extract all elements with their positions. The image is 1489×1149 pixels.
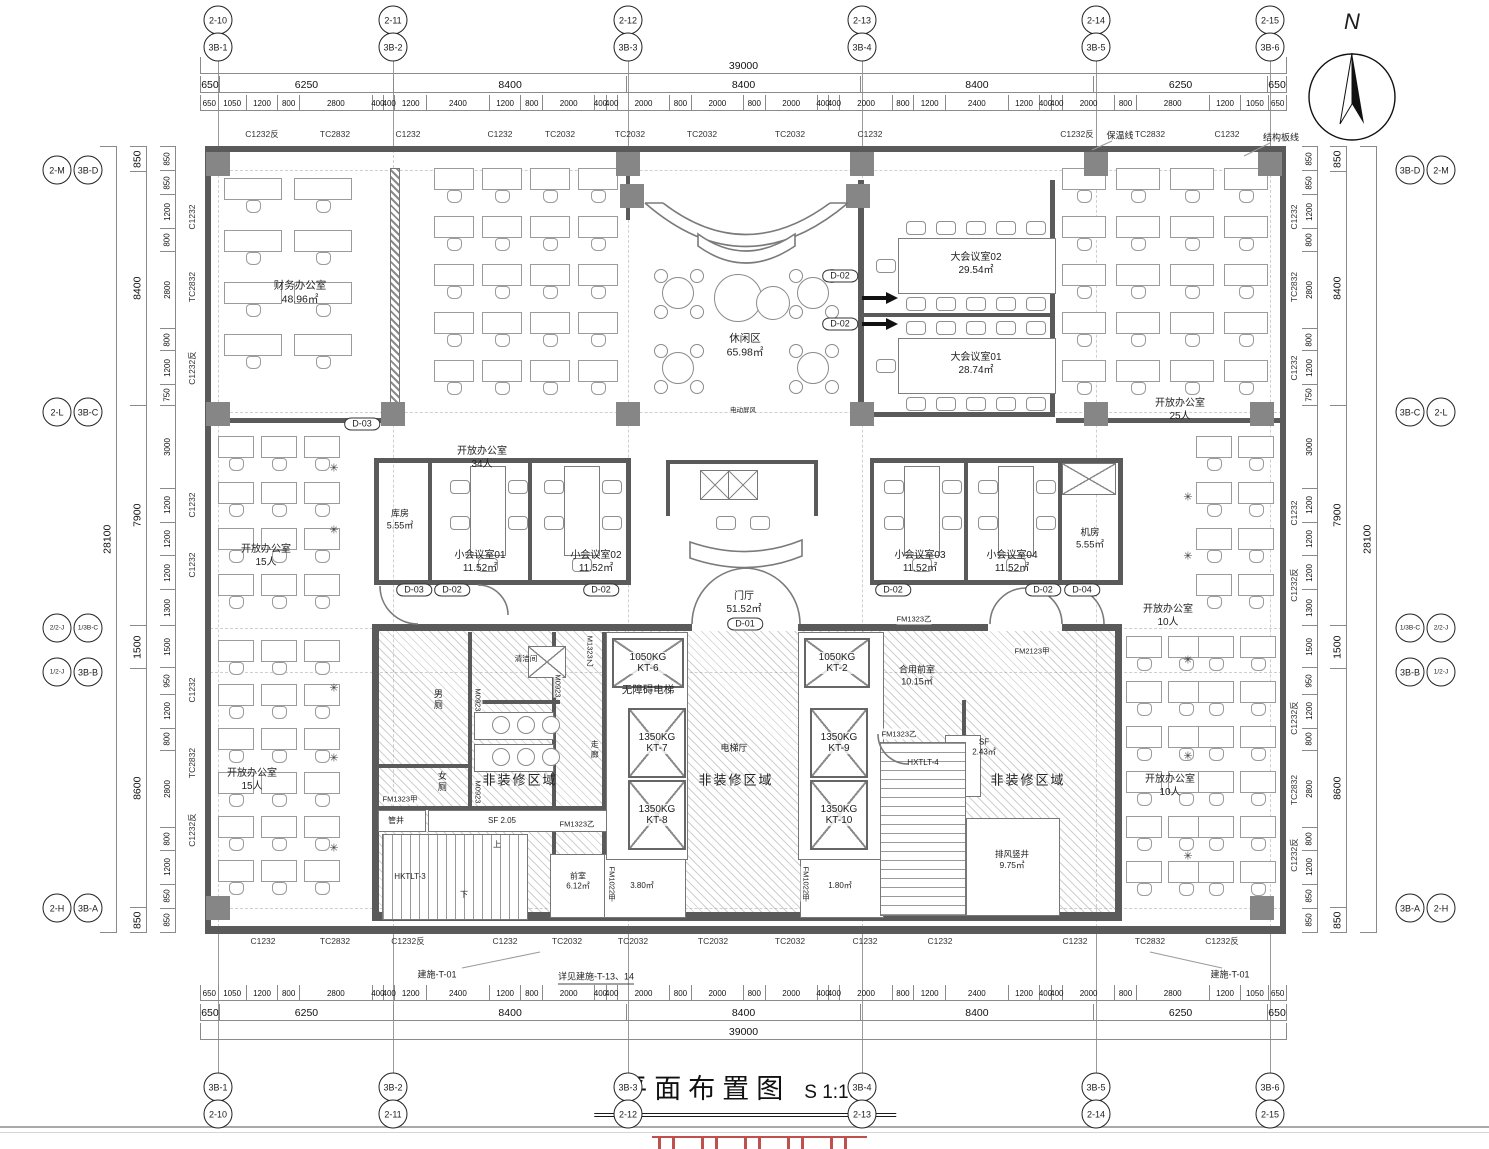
dimension-value: 2800 <box>1306 281 1314 299</box>
annotation-js-left: 建施-T-01 <box>417 968 456 981</box>
axis-bubble: 3B-2 <box>379 33 408 62</box>
chair <box>315 458 330 471</box>
wash-basin <box>492 716 510 734</box>
dimension-segment: 2800 <box>1137 95 1210 110</box>
axis-bubble: 2/2-J <box>43 614 72 643</box>
dimension-segment: 6250 <box>220 76 394 92</box>
dim-left-overall: 28100 <box>100 146 117 933</box>
dimension-value: 800 <box>282 100 295 110</box>
chair <box>1137 703 1152 716</box>
desk <box>1238 528 1274 550</box>
elevator-cell: 1350KGKT-9 <box>810 708 868 778</box>
chair <box>447 382 462 395</box>
window-type-label: C1232 <box>187 552 197 577</box>
axis-bubble: 3B-B <box>1396 658 1425 687</box>
axis-bubble: 2-M <box>1427 156 1456 185</box>
axis-bubble: 1/2-J <box>43 658 72 687</box>
elevator-cell: 1050KGKT-2 <box>804 638 870 688</box>
room-name: 大会议室02 <box>950 252 1001 263</box>
dimension-segment: 1200 <box>160 556 175 590</box>
desk <box>1238 574 1274 596</box>
door-tag-d02: D-02 <box>434 584 470 597</box>
desk <box>1116 216 1160 238</box>
room-capacity: 25人 <box>1169 411 1190 422</box>
dimension-value: 800 <box>896 100 909 110</box>
plant-icon: ✳ <box>1183 850 1192 863</box>
desk <box>482 312 522 334</box>
chair <box>495 238 510 251</box>
structural-column <box>1084 152 1108 176</box>
room-label-shaft-b: 1.80㎡ <box>828 881 852 891</box>
meeting-table <box>904 466 940 556</box>
dimension-value: 750 <box>163 389 171 402</box>
dimension-value: 39000 <box>729 61 758 74</box>
chair <box>1137 883 1152 896</box>
dimension-segment: 800 <box>670 95 692 110</box>
chair <box>1036 516 1056 530</box>
dimension-segment: 650 <box>201 985 219 1000</box>
chair <box>315 596 330 609</box>
door-tag-m1323: M1323乙 <box>585 636 596 666</box>
window-type-label: TC2032 <box>775 129 805 139</box>
window-type-label: C1232 <box>1214 129 1239 139</box>
chair <box>942 480 962 494</box>
desk <box>261 436 297 458</box>
axis-bubble: 3B-5 <box>1082 1073 1111 1102</box>
dimension-value: 6250 <box>1169 80 1192 93</box>
desk <box>1196 436 1232 458</box>
dimension-segment: 7900 <box>1330 406 1346 626</box>
dimension-value: 950 <box>163 674 171 687</box>
window-type-label: TC2832 <box>320 129 350 139</box>
axis-bubble: 2-H <box>43 894 72 923</box>
desk <box>294 178 352 200</box>
dimension-segment: 850 <box>160 909 175 933</box>
axis-bubble: 3B-3 <box>614 1073 643 1102</box>
window-type-label: TC2832 <box>320 936 350 946</box>
axis-bubble: 2-12 <box>614 6 643 35</box>
chair <box>229 838 244 851</box>
axis-bubble: 2-11 <box>379 1100 408 1129</box>
dimension-segment: 8400 <box>130 172 146 406</box>
desk <box>261 640 297 662</box>
window-type-label: C1232反 <box>186 813 198 847</box>
desk <box>530 264 570 286</box>
desk <box>224 178 282 200</box>
desk <box>304 772 340 794</box>
dimension-value: 800 <box>748 100 761 110</box>
room-label-storage: 库房5.55㎡ <box>387 508 414 531</box>
axis-bubble: 2-M <box>43 156 72 185</box>
sink-unit <box>728 470 758 500</box>
dimension-value: 800 <box>748 990 761 1000</box>
dimension-segment: 800 <box>670 985 692 1000</box>
structural-column <box>616 402 640 426</box>
chair <box>447 286 462 299</box>
elevator-cell: 1350KGKT-10 <box>810 780 868 850</box>
chair <box>1207 458 1222 471</box>
dimension-segment: 1200 <box>1302 489 1317 523</box>
elevator-label: 1350KGKT-9 <box>821 732 858 754</box>
dimension-segment: 800 <box>1302 729 1317 752</box>
window-type-label: TC2032 <box>552 936 582 946</box>
window-type-label: C1232 <box>1289 204 1299 229</box>
room-area: 29.54㎡ <box>958 265 993 276</box>
dimension-segment: 8400 <box>627 76 860 92</box>
wash-basin <box>542 716 560 734</box>
round-table <box>797 352 829 384</box>
chair <box>591 382 606 395</box>
dimension-value: 2800 <box>1306 780 1314 798</box>
desk <box>1198 726 1234 748</box>
desk <box>1126 636 1162 658</box>
dimension-segment: 850 <box>1302 171 1317 195</box>
dimension-segment: 850 <box>130 147 146 172</box>
chair <box>447 334 462 347</box>
window-type-label: C1232 <box>395 129 420 139</box>
dimension-value: 2000 <box>635 990 653 1000</box>
dimension-segment: 1200 <box>1302 556 1317 590</box>
axis-bubble: 3B-6 <box>1256 33 1285 62</box>
dimension-segment: 1200 <box>395 95 427 110</box>
chair <box>272 794 287 807</box>
chair <box>1179 883 1194 896</box>
chair <box>495 382 510 395</box>
wash-basin <box>517 748 535 766</box>
plant-icon: ✳ <box>329 842 338 855</box>
dimension-value: 800 <box>674 100 687 110</box>
dimension-segment: 750 <box>160 385 175 406</box>
chair <box>1026 321 1046 335</box>
room-label-shared-front: 合用前室10.15㎡ <box>899 664 935 687</box>
desk <box>261 816 297 838</box>
dimension-segment: 2000 <box>840 95 892 110</box>
dimension-segment: 1200 <box>1009 985 1041 1000</box>
room-capacity: 10人 <box>1157 617 1178 628</box>
dimension-value: 1200 <box>1015 100 1033 110</box>
dimension-value: 850 <box>1333 150 1344 168</box>
desk <box>261 860 297 882</box>
room-label-open10a: 开放办公室10人 <box>1143 603 1193 629</box>
dimension-segment: 1200 <box>1210 985 1242 1000</box>
desk <box>434 168 474 190</box>
door-tag-m0923: M0923 <box>474 689 483 712</box>
axis-bubble: 2/2-J <box>1427 614 1456 643</box>
room-label-small04: 小会议室0411.52㎡ <box>986 549 1037 575</box>
axis-bubble: 3B-1 <box>204 1073 233 1102</box>
fire-door-tag: FM1022甲 <box>801 866 812 901</box>
dimension-segment: 1200 <box>914 95 946 110</box>
dimension-value: 1200 <box>164 530 172 548</box>
dimension-value: 850 <box>1305 914 1313 927</box>
north-label: N <box>1344 9 1360 35</box>
dimension-value: 400 <box>605 100 618 110</box>
dimension-value: 28100 <box>103 525 114 554</box>
axis-bubble: 3B-A <box>74 894 103 923</box>
chair <box>1249 458 1264 471</box>
chair <box>591 238 606 251</box>
chair <box>1239 190 1254 203</box>
window-type-label: C1232 <box>487 129 512 139</box>
desk <box>1116 360 1160 382</box>
window-type-label: TC2832 <box>1289 272 1299 302</box>
room-name: 开放办公室 <box>1155 398 1205 409</box>
dim-top-overall: 39000 <box>200 57 1287 74</box>
desk <box>530 360 570 382</box>
room-label-corridor: 走廊 <box>589 740 599 760</box>
chair <box>591 286 606 299</box>
dimension-value: 1500 <box>1306 638 1314 656</box>
chair <box>942 516 962 530</box>
chair <box>1026 221 1046 235</box>
stair-label-right: HXTLT-4 <box>907 758 938 768</box>
desk <box>434 312 474 334</box>
room-name: 排风竖井 <box>995 849 1029 859</box>
chair <box>1131 238 1146 251</box>
desk <box>218 574 254 596</box>
window-type-label: C1232 <box>250 936 275 946</box>
dimension-value: 8600 <box>133 776 144 799</box>
structural-column <box>616 152 640 176</box>
meeting-table <box>998 466 1034 556</box>
chair <box>1131 286 1146 299</box>
room-area: 11.52㎡ <box>903 563 937 574</box>
dimension-value: 28100 <box>1363 525 1374 554</box>
window-type-label: TC2832 <box>1135 129 1165 139</box>
window-type-label: TC2032 <box>698 936 728 946</box>
desk <box>1224 360 1268 382</box>
desk <box>1240 771 1276 793</box>
dimension-value: 2400 <box>968 100 986 110</box>
desk <box>1196 528 1232 550</box>
desk <box>530 216 570 238</box>
room-label-women: 女厕 <box>435 771 447 793</box>
desk <box>304 860 340 882</box>
chair <box>315 882 330 895</box>
dimension-segment: 2000 <box>618 985 670 1000</box>
room-area: 11.52㎡ <box>463 563 497 574</box>
chair <box>654 305 668 319</box>
window-type-label: TC2032 <box>615 129 645 139</box>
dimension-segment: 2400 <box>946 95 1009 110</box>
elevator-cell: 1350KGKT-7 <box>628 708 686 778</box>
room-name: 前室 <box>570 872 586 881</box>
door-tag-d02: D-02 <box>875 584 911 597</box>
dimension-value: 8400 <box>133 276 144 299</box>
dimension-value: 400 <box>383 990 396 1000</box>
stair-label-left: HKTLT-3 <box>394 872 425 882</box>
dimension-value: 1050 <box>223 990 241 1000</box>
annotation-js-mid: 详见建施-T-13、14 <box>558 970 634 985</box>
dimension-value: 1200 <box>921 990 939 1000</box>
room-name: 开放办公室 <box>241 544 291 555</box>
axis-bubble: 3B-4 <box>848 1073 877 1102</box>
dim-left-minors: 8508501200800280080012007503000120012001… <box>160 146 176 933</box>
room-label-shaft-a: 3.80㎡ <box>630 881 654 891</box>
chair <box>690 380 704 394</box>
axis-bubble: 2-L <box>1427 398 1456 427</box>
dimension-segment: 8400 <box>627 1004 860 1020</box>
desk <box>1116 264 1160 286</box>
chair <box>1209 883 1224 896</box>
dimension-value: 800 <box>163 833 171 846</box>
dimension-segment: 1200 <box>247 985 279 1000</box>
chair <box>936 297 956 311</box>
chair <box>272 838 287 851</box>
dimension-segment: 2000 <box>692 95 744 110</box>
chair <box>1185 334 1200 347</box>
dimension-segment: 1200 <box>160 523 175 557</box>
room-area: 10.15㎡ <box>901 676 933 686</box>
desk <box>1198 816 1234 838</box>
desk <box>304 816 340 838</box>
dimension-segment: 1200 <box>1210 95 1242 110</box>
desk <box>1224 216 1268 238</box>
dimension-segment: 800 <box>521 95 543 110</box>
chair <box>1077 190 1092 203</box>
desk <box>218 640 254 662</box>
entrance-arrows <box>862 292 898 330</box>
decor <box>862 318 898 330</box>
axis-bubble: 3B-4 <box>848 33 877 62</box>
room-name: 休闲区 <box>729 332 761 344</box>
dimension-value: 1200 <box>164 702 172 720</box>
dimension-segment: 1500 <box>130 626 146 669</box>
window-type-label: C1232 <box>1289 355 1299 380</box>
chair <box>602 516 622 530</box>
sofa-circle <box>756 286 790 320</box>
door-tag-d01: D-01 <box>727 618 763 631</box>
dimension-value: 800 <box>525 100 538 110</box>
structural-column <box>206 896 230 920</box>
dimension-segment: 1200 <box>1302 195 1317 229</box>
dimension-value: 1200 <box>1306 496 1314 514</box>
chair <box>1026 297 1046 311</box>
room-label-pipe: 管井 <box>388 816 404 826</box>
room-name: 机房 <box>1080 528 1099 539</box>
desk <box>1198 636 1234 658</box>
dimension-value: 2800 <box>164 281 172 299</box>
cropped-red-stamp <box>652 1136 867 1149</box>
axis-bubble: 2-13 <box>848 1100 877 1129</box>
chair <box>1026 397 1046 411</box>
chair <box>450 480 470 494</box>
window-type-label: TC2032 <box>775 936 805 946</box>
chair <box>876 259 896 273</box>
desk <box>224 334 282 356</box>
window-type-label: TC2832 <box>187 272 197 302</box>
window-type-label: C1232 <box>927 936 952 946</box>
dimension-segment: 2800 <box>1137 985 1210 1000</box>
desk <box>261 684 297 706</box>
axis-bubble: 2-15 <box>1256 1100 1285 1129</box>
desk <box>218 728 254 750</box>
dimension-segment: 800 <box>278 985 300 1000</box>
chair <box>591 334 606 347</box>
room-area: 28.74㎡ <box>958 365 993 376</box>
dimension-value: 2000 <box>708 990 726 1000</box>
dimension-segment: 1500 <box>1302 626 1317 668</box>
chair <box>543 190 558 203</box>
chair <box>316 356 331 369</box>
structural-column <box>620 184 644 208</box>
chair <box>1239 286 1254 299</box>
chair <box>272 458 287 471</box>
dimension-value: 3000 <box>164 438 172 456</box>
dimension-value: 1300 <box>164 599 172 617</box>
chair <box>447 238 462 251</box>
door-tag-d02: D-02 <box>583 584 619 597</box>
room-label-open15a: 开放办公室15人 <box>241 543 291 569</box>
dimension-value: 1300 <box>1306 599 1314 617</box>
window-type-label: C1232反 <box>1205 935 1239 947</box>
chair <box>690 305 704 319</box>
chair <box>1207 504 1222 517</box>
fire-door-tag: FM1022甲 <box>607 866 618 901</box>
dimension-segment: 8400 <box>394 76 627 92</box>
dimension-value: 800 <box>1305 733 1313 746</box>
dimension-segment: 1200 <box>160 351 175 385</box>
wall <box>205 146 1286 152</box>
elevator-cell: 1050KGKT-6 <box>612 638 684 688</box>
dim-top-majors: 65062508400840084006250650 <box>200 76 1287 93</box>
room-name: 开放办公室 <box>1143 604 1193 615</box>
dimension-value: 1050 <box>1246 990 1264 1000</box>
annotation-structural-line: 结构板线 <box>1263 131 1299 144</box>
dimension-value: 1200 <box>164 564 172 582</box>
dimension-segment: 1050 <box>219 95 247 110</box>
chair <box>316 200 331 213</box>
chair <box>544 516 564 530</box>
dimension-segment: 800 <box>893 985 915 1000</box>
chair <box>1179 703 1194 716</box>
chair <box>315 794 330 807</box>
dimension-value: 2400 <box>449 990 467 1000</box>
chair <box>996 397 1016 411</box>
dimension-value: 8400 <box>498 1008 521 1021</box>
room-label-small01: 小会议室0111.52㎡ <box>454 549 505 575</box>
dimension-segment: 1200 <box>490 95 522 110</box>
dimension-segment: 2000 <box>840 985 892 1000</box>
dimension-value: 800 <box>163 733 171 746</box>
desk <box>218 436 254 458</box>
room-label-small03: 小会议室0311.52㎡ <box>894 549 945 575</box>
axis-bubble: 1/3B-C <box>1396 614 1425 643</box>
desk <box>1240 861 1276 883</box>
dimension-segment: 950 <box>1302 668 1317 695</box>
dimension-value: 2800 <box>327 100 345 110</box>
chair <box>906 221 926 235</box>
desk <box>261 728 297 750</box>
dimension-value: 8400 <box>965 80 988 93</box>
dim-top-minors: 6501050120080028004004001200240012008002… <box>200 95 1287 111</box>
desk <box>304 640 340 662</box>
dimension-value: 750 <box>1305 389 1313 402</box>
dimension-segment: 650 <box>1269 95 1287 110</box>
dimension-value: 2000 <box>635 100 653 110</box>
chair <box>966 397 986 411</box>
chair <box>1209 748 1224 761</box>
chair <box>272 596 287 609</box>
dimension-segment: 650 <box>1269 985 1287 1000</box>
axis-bubble: 3B-3 <box>614 33 643 62</box>
chair <box>996 221 1016 235</box>
dimension-value: 6250 <box>295 1008 318 1021</box>
dimension-value: 400 <box>828 990 841 1000</box>
dimension-value: 1200 <box>921 100 939 110</box>
dimension-segment: 400 <box>607 985 618 1000</box>
chair <box>978 516 998 530</box>
